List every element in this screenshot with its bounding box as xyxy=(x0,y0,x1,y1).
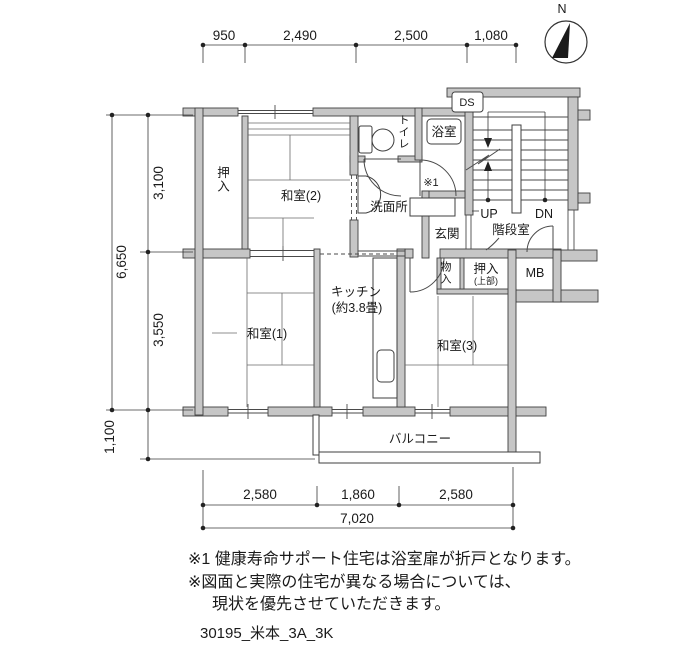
dim-bottom-total: 7,020 xyxy=(340,511,374,526)
down-label: DN xyxy=(535,207,553,221)
dim-bottom-1: 2,580 xyxy=(243,487,277,502)
dim-left-total: 6,650 xyxy=(114,245,129,279)
room-label-storage: 物入 xyxy=(439,260,452,285)
up-arrow-icon xyxy=(484,161,492,171)
stair-label-leader xyxy=(486,238,499,250)
north-label: N xyxy=(557,2,566,16)
drawing-id: 30195_米本_3A_3K xyxy=(200,625,333,642)
dim-top-4: 1,080 xyxy=(474,28,508,43)
stair-handrail xyxy=(512,125,521,213)
dim-left-2: 3,550 xyxy=(151,313,166,347)
up-label: UP xyxy=(480,207,497,221)
floor-plan-page: 和室(2) 和室(1) 和室(3) キッチン (約3.8畳) 押入 トイレ 浴室… xyxy=(0,0,700,650)
room-label-washitsu2: 和室(2) xyxy=(281,188,321,203)
stairwell-label: 階段室 xyxy=(492,222,530,237)
room-label-washroom: 洗面所 xyxy=(370,200,408,214)
toilet-bowl-icon xyxy=(372,129,394,151)
bath-note-ref: ※1 xyxy=(423,177,438,189)
dim-bottom-2: 1,860 xyxy=(341,487,375,502)
down-arrow-icon xyxy=(484,138,492,148)
notes-block: ※1 健康寿命サポート住宅は浴室扉が折戸となります。 ※図面と実際の住宅が異なる… xyxy=(188,550,581,642)
room-label-oshiire-left: 押入 xyxy=(215,166,229,193)
room-label-toilet: トイレ xyxy=(397,114,409,150)
room-label-oshiire-upper: 押入 xyxy=(473,262,499,276)
dim-top-2: 2,490 xyxy=(283,28,317,43)
room-label-washitsu3: 和室(3) xyxy=(437,338,477,353)
note-line-3: 現状を優先させていただきます。 xyxy=(212,595,450,613)
duct-space-label: DS xyxy=(459,97,474,109)
room-label-bath: 浴室 xyxy=(431,124,456,139)
dim-top-3: 2,500 xyxy=(394,28,428,43)
note-line-1: ※1 健康寿命サポート住宅は浴室扉が折戸となります。 xyxy=(188,550,581,568)
room-label-genkan: 玄関 xyxy=(434,226,459,241)
kitchen-sink-icon xyxy=(377,350,394,382)
shoe-cabinet xyxy=(410,198,455,216)
room-label-oshiire-upper-sub: (上部) xyxy=(474,275,498,286)
dim-top-1: 950 xyxy=(213,28,236,43)
room-label-balcony: バルコニー xyxy=(389,432,451,446)
north-compass: N xyxy=(545,2,587,63)
dim-left-1: 3,100 xyxy=(151,166,166,200)
room-label-kitchen: キッチン xyxy=(331,285,381,299)
meter-box-door-arc xyxy=(527,226,553,252)
dim-bottom-3: 2,580 xyxy=(439,487,473,502)
room-label-meter-box: MB xyxy=(526,266,545,280)
toilet-tank-icon xyxy=(359,126,372,153)
note-line-2: ※図面と実際の住宅が異なる場合については、 xyxy=(188,573,521,591)
dim-left-3: 1,100 xyxy=(102,420,117,454)
room-label-washitsu1: 和室(1) xyxy=(247,326,287,341)
floor-plan-drawing: 和室(2) 和室(1) 和室(3) キッチン (約3.8畳) 押入 トイレ 浴室… xyxy=(0,0,700,650)
room-label-kitchen-size: (約3.8畳) xyxy=(332,300,383,315)
